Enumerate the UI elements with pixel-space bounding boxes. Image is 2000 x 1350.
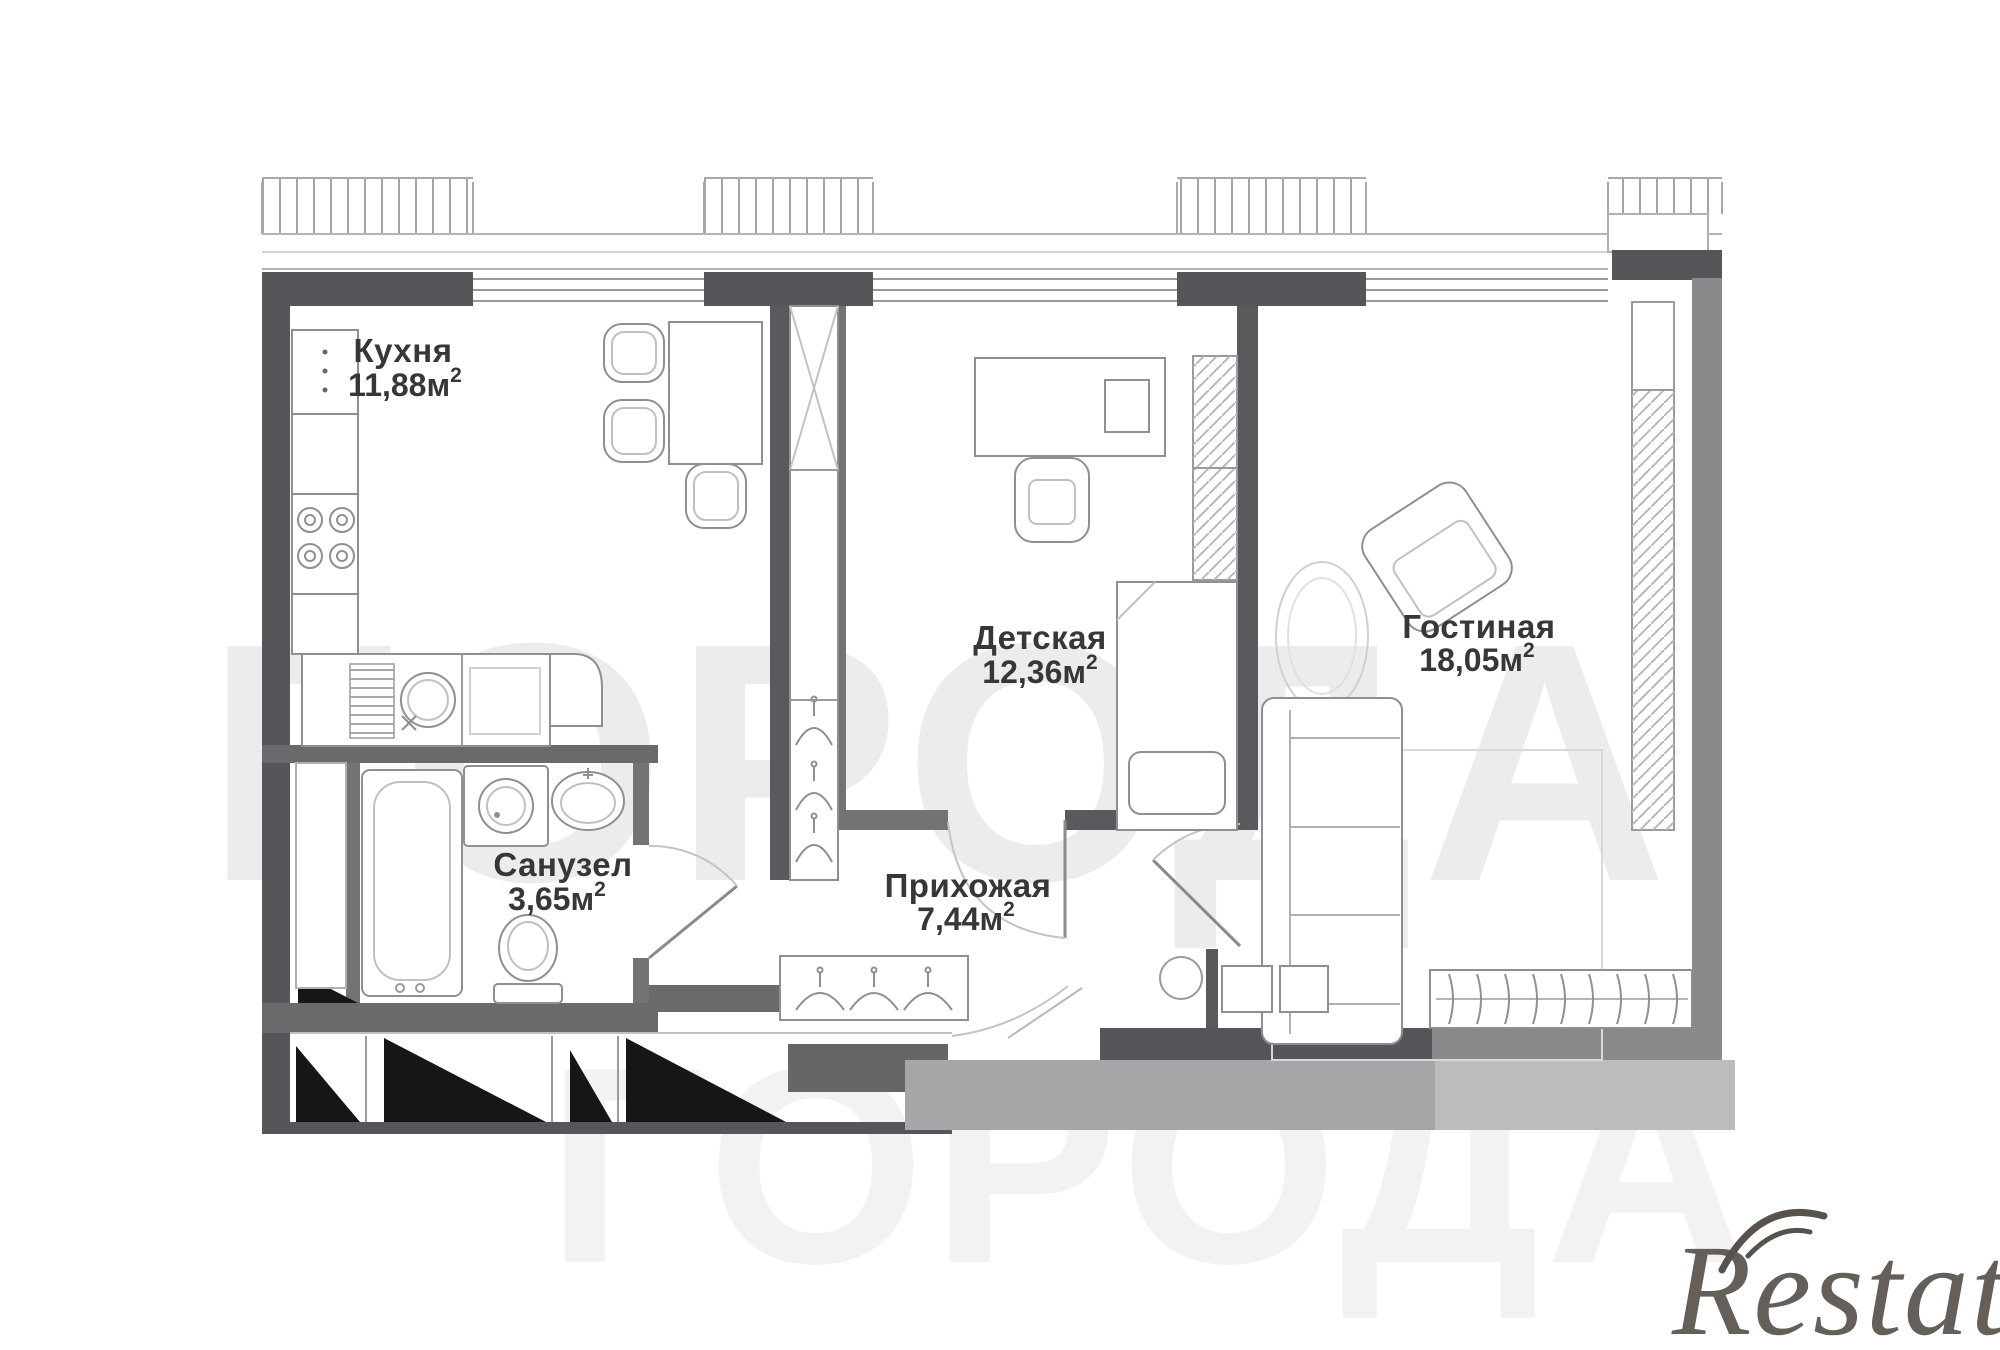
logo-text: Restate: [1671, 1219, 2000, 1350]
pouf: [1160, 957, 1202, 999]
floor-plan-page: ГОРОДА ГОРОДА: [0, 0, 2000, 1350]
wall-bath-right-top: [633, 763, 649, 845]
hall-closet: [790, 306, 838, 880]
kitchen-area: 11,88м2: [348, 364, 462, 403]
stove: [292, 494, 358, 594]
washing-machine: [464, 766, 548, 846]
kitchen-table: [669, 322, 762, 464]
wall-top-c: [1177, 272, 1366, 306]
bathroom-name: Санузел: [493, 846, 632, 883]
wall-nursery-living: [1237, 306, 1258, 830]
hallway-area: 7,44м2: [917, 898, 1015, 937]
hanger-wardrobe: [1430, 970, 1692, 1028]
toilet: [494, 915, 562, 1003]
bathtub: [362, 770, 462, 996]
wall-right: [1692, 278, 1722, 1060]
entrance-slab: [905, 1060, 1735, 1130]
hallway-name: Прихожая: [885, 867, 1052, 904]
wall-bottom-light: [1432, 1028, 1722, 1060]
bathroom-area: 3,65м2: [508, 878, 606, 917]
desk-monitor: [1105, 380, 1149, 432]
wall-top-b: [704, 272, 873, 306]
nursery-wardrobe: [1193, 356, 1237, 580]
wall-living-post: [1206, 949, 1218, 1028]
dish-rack: [350, 664, 394, 738]
wall-bath-right-bottom: [633, 958, 649, 1003]
logo-restate: Restate: [1671, 1212, 2000, 1350]
wall-top-a: [262, 272, 473, 306]
living-area: 18,05м2: [1419, 639, 1534, 678]
counter-corner: [550, 654, 602, 726]
living-wardrobe: [1632, 302, 1674, 830]
bed-pillow: [1129, 752, 1225, 814]
kitchen-cabinet-tall: [292, 414, 358, 494]
wall-nursery-west: [838, 306, 846, 830]
wall-bath-left: [346, 763, 360, 1003]
duct-shaft: [296, 763, 346, 988]
wall-nursery-south-stub: [844, 810, 948, 830]
room-label-kitchen: Кухня 11,88м2: [348, 332, 462, 403]
nursery-area: 12,36м2: [982, 651, 1097, 690]
wall-kitchen-bath: [262, 745, 658, 763]
floor-plan-svg: ГОРОДА ГОРОДА: [0, 0, 2000, 1350]
kitchen-cabinet-low: [292, 594, 358, 654]
wall-kitchen-hall: [770, 306, 790, 880]
balcony-notch: [1608, 214, 1708, 252]
wall-corridor-south: [649, 985, 780, 1012]
shoe-bench: [780, 956, 968, 1020]
nursery-bed: [1117, 582, 1237, 830]
kitchen-name: Кухня: [354, 332, 453, 369]
wall-bath-south: [262, 1003, 658, 1033]
desk-chair: [1015, 458, 1089, 542]
wall-top-d: [1612, 250, 1722, 280]
wall-stair-bottom: [262, 1122, 952, 1134]
